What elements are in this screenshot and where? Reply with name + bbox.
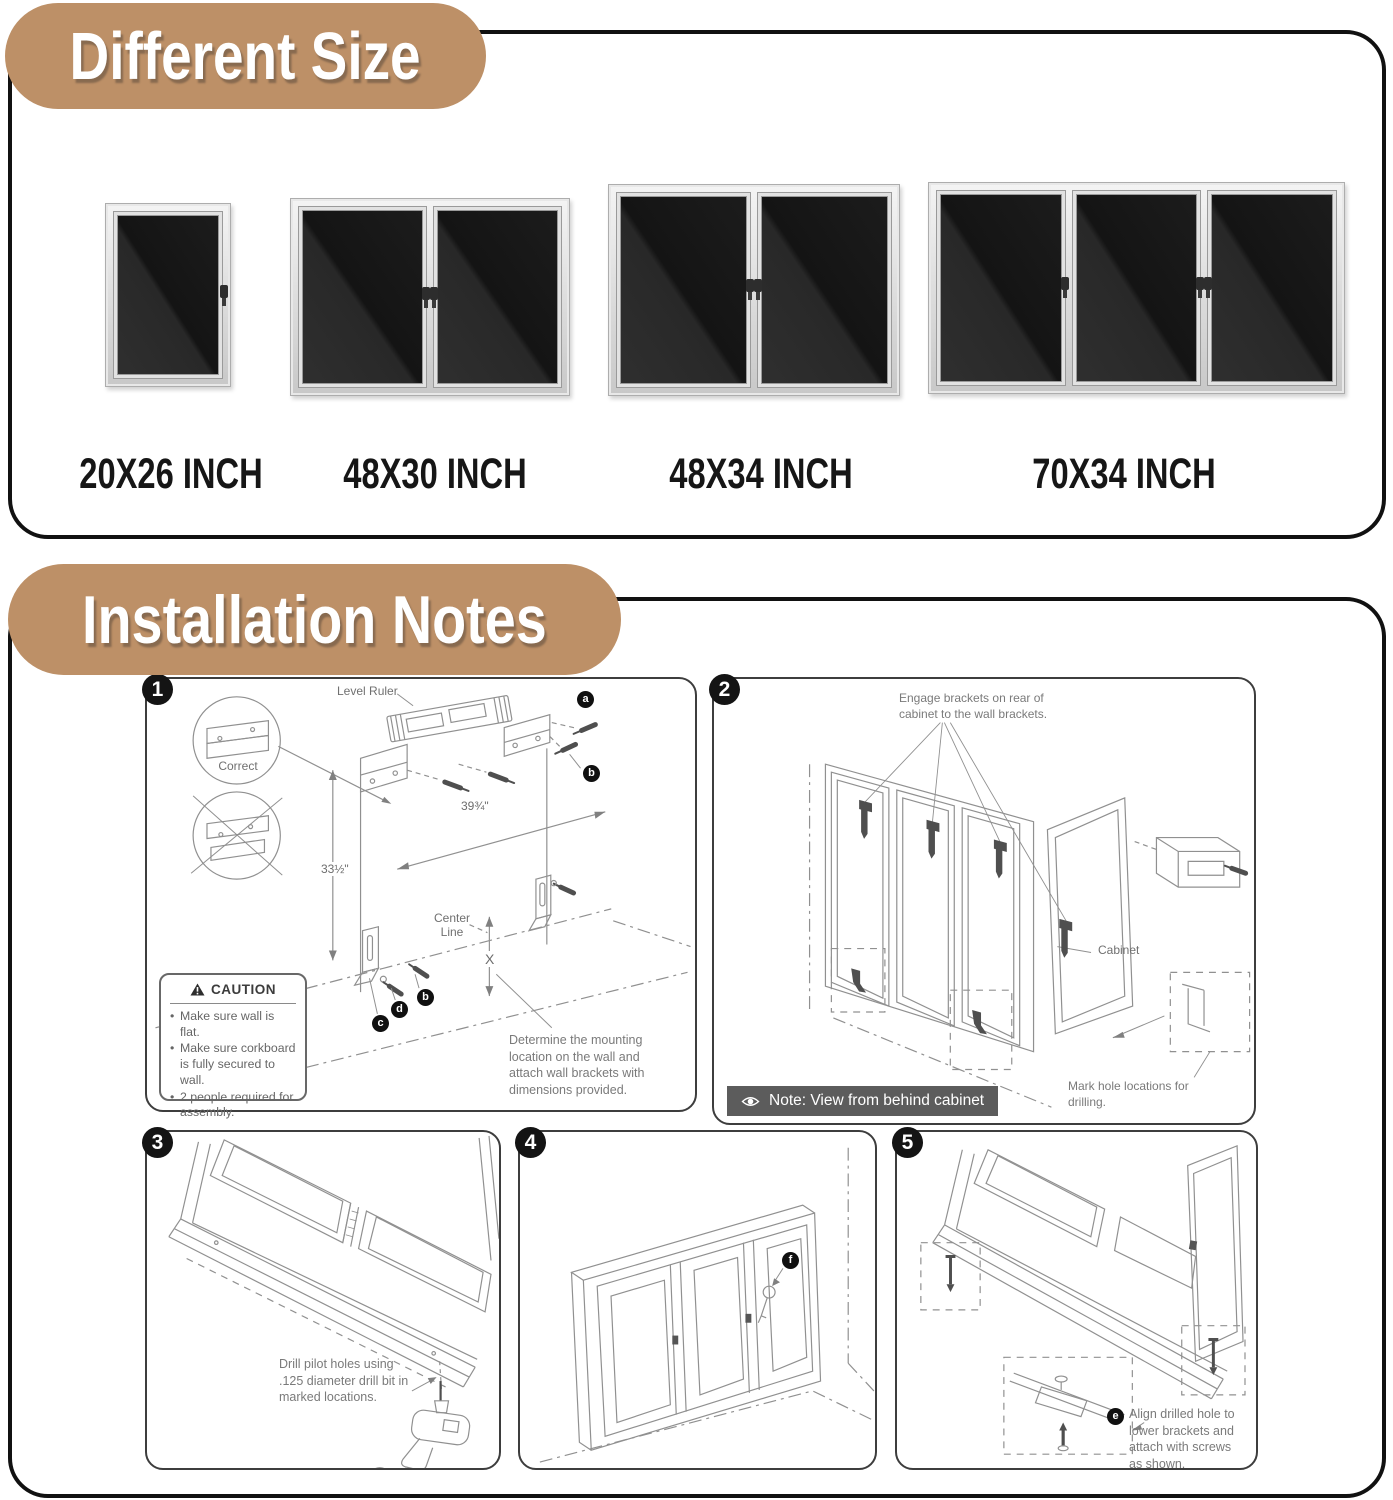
step1-description: Determine the mounting location on the w… [509,1032,654,1098]
size-label-70x34: 70X34 INCH [1010,450,1238,499]
lock-icon [754,279,762,292]
lock-icon [746,279,754,292]
center-line-label: Center Line [430,911,474,940]
lock-icon [430,287,438,300]
cabinet-label: Cabinet [1098,943,1139,957]
caution-list: Make sure wall is flat. Make sure corkbo… [170,1009,296,1121]
board-door [299,207,426,387]
board-door [617,193,750,387]
marker-a: a [577,691,594,708]
section-title: Different Size [70,18,421,95]
step4-diagram-art [520,1132,875,1468]
lock-icon [422,287,430,300]
width-dimension: 39¾" [459,799,491,813]
board-door [434,207,561,387]
step5-number-badge: 5 [892,1127,923,1158]
correct-label: Correct [211,759,265,773]
note-text: Note: View from behind cabinet [769,1092,984,1110]
step3-number-badge: 3 [142,1127,173,1158]
step2-number-badge: 2 [709,674,740,705]
caution-title-row: CAUTION [170,982,296,997]
marker-b2: b [417,989,434,1006]
step4-number-badge: 4 [515,1127,546,1158]
caution-item: Make sure corkboard is fully secured to … [170,1041,296,1088]
size-label-48x34: 48X34 INCH [647,450,875,499]
caution-item: 2 people required for assembly. [170,1090,296,1121]
section-title: Installation Notes [82,581,547,659]
board-door [937,191,1065,385]
lock-icon [1061,277,1069,290]
warning-triangle-icon [190,983,205,996]
marker-b: b [583,765,600,782]
board-20x26 [105,203,231,387]
step3-diagram-art [147,1132,499,1468]
marker-d: d [391,1001,408,1018]
step3-panel: 3 [145,1130,501,1470]
different-size-title-badge: Different Size [5,3,486,109]
step5-panel: 5 [895,1130,1258,1470]
step5-description: Align drilled hole to lower brackets and… [1129,1406,1247,1472]
marker-c: c [372,1015,389,1032]
caution-box: CAUTION Make sure wall is flat. Make sur… [159,973,307,1101]
lock-icon [1196,277,1204,290]
marker-e: e [1107,1408,1124,1425]
eye-icon [741,1095,760,1108]
board-door [758,193,891,387]
step1-panel: 1 [145,677,697,1112]
step3-description: Drill pilot holes using .125 diameter dr… [279,1356,421,1406]
step2-diagram-art [714,679,1254,1123]
step2-note-bar: Note: View from behind cabinet [727,1086,998,1116]
step4-panel: 4 [518,1130,877,1470]
marker-f: f [782,1252,799,1269]
step2-panel: 2 [712,677,1256,1125]
board-48x30 [290,198,570,396]
x-dimension-label: X [483,951,496,967]
step2-mark-text: Mark hole locations for drilling. [1068,1079,1203,1111]
size-label-20x26: 20X26 INCH [57,450,285,499]
installation-title-badge: Installation Notes [8,564,621,675]
height-dimension: 33½" [319,862,351,876]
board-door [1073,191,1201,385]
step1-number-badge: 1 [142,674,173,705]
board-48x34 [608,184,900,396]
lock-icon [1204,277,1212,290]
board-door [1208,191,1336,385]
lock-icon [220,285,228,298]
caution-item: Make sure wall is flat. [170,1009,296,1040]
product-infographic: Different Size 20X26 INCH 48X30 INCH 48X… [0,0,1393,1500]
board-door [114,212,222,378]
board-70x34 [928,182,1345,394]
level-ruler-label: Level Ruler [337,684,398,698]
size-label-48x30: 48X30 INCH [321,450,549,499]
caution-title: CAUTION [211,982,276,997]
step2-engage-text: Engage brackets on rear of cabinet to th… [899,691,1079,723]
